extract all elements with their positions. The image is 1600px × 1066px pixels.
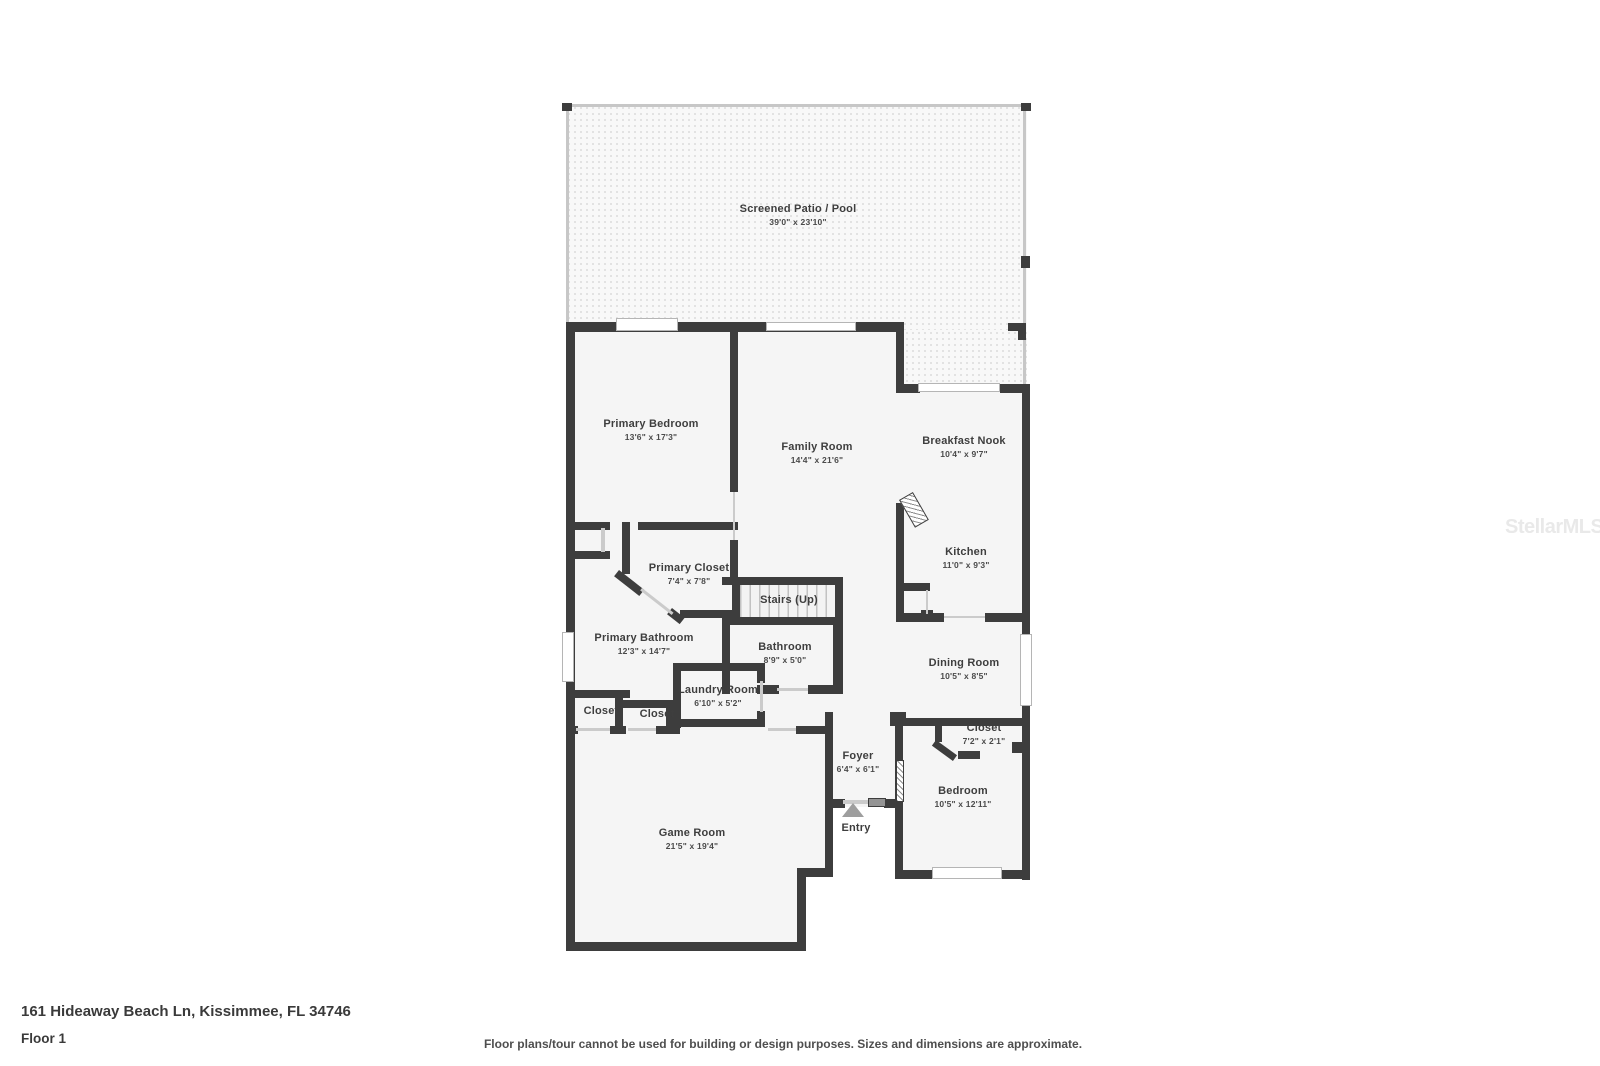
wall-segment [1008,323,1026,331]
door-opening [576,728,610,731]
door-opening [926,590,928,614]
room-dims: 6'4" x 6'1" [837,764,880,775]
room-label-family-room: Family Room14'4" x 21'6" [781,441,852,465]
room-dims: 10'5" x 12'11" [935,799,992,810]
window [932,867,1002,879]
room-name: Closet [640,708,675,722]
room-name: Kitchen [942,546,989,560]
wall-segment [615,700,673,708]
entry-label: Entry [841,822,870,836]
door-opening [777,688,808,691]
room-label-closet-b: Closet [640,708,675,722]
floor-plan: Screened Patio / Pool39'0" x 23'10" Prim… [0,0,1600,1066]
door-opening [768,728,796,731]
wall-segment [638,522,738,530]
wall-segment [896,322,904,392]
wall-segment [1000,384,1030,393]
window [616,318,678,331]
room-dims: 7'2" x 2'1" [963,736,1006,747]
wall-segment [566,942,806,951]
wall-segment [730,322,738,492]
floor-number-label: Floor 1 [21,1031,66,1046]
room-label-breakfast-nook: Breakfast Nook10'4" x 9'7" [922,435,1006,459]
room-dims: 14'4" x 21'6" [781,455,852,466]
room-label-stairs-up: Stairs (Up) [760,594,818,608]
room-label-kitchen: Kitchen11'0" x 9'3" [942,546,989,570]
screen-wall [566,104,569,326]
room-name: Laundry Room [678,684,758,698]
door-opening [760,681,763,712]
wall-segment [1012,742,1022,753]
room-label-bedroom-closet: Closet7'2" x 2'1" [963,722,1006,746]
floorplan-page: Screened Patio / Pool39'0" x 23'10" Prim… [0,0,1600,1066]
room-name: Breakfast Nook [922,435,1006,449]
room-name: Foyer [837,750,880,764]
room-dims: 39'0" x 23'10" [740,217,857,228]
room-label-game-room: Game Room21'5" x 19'4" [659,827,726,851]
wall-segment [1021,103,1031,111]
entry-arrow-icon [842,803,864,817]
wall-segment [622,522,630,574]
wall-segment [958,751,980,759]
room-dims: 21'5" x 19'4" [659,841,726,852]
room-name: Primary Bathroom [594,632,693,646]
room-label-primary-closet: Primary Closet7'4" x 7'8" [649,562,729,586]
mls-watermark: StellarMLS [1505,516,1600,539]
room-name: Dining Room [929,657,1000,671]
room-name: Entry [841,822,870,836]
room-name: Screened Patio / Pool [740,203,857,217]
window [918,383,1000,392]
room-floor [566,872,797,950]
window [562,632,574,682]
patio-floor [904,330,1027,388]
room-name: Closet [963,722,1006,736]
room-label-dining-room: Dining Room10'5" x 8'5" [929,657,1000,681]
room-label-foyer: Foyer6'4" x 6'1" [837,750,880,774]
room-label-laundry-room: Laundry Room6'10" x 5'2" [678,684,758,708]
door-leaf [896,760,904,802]
room-name: Closet [584,705,619,719]
room-name: Primary Closet [649,562,729,576]
wall-segment [562,103,572,111]
room-label-closet-a: Closet [584,705,619,719]
room-label-primary-bathroom: Primary Bathroom12'3" x 14'7" [594,632,693,656]
window [1020,634,1032,706]
disclaimer-text: Floor plans/tour cannot be used for buil… [484,1037,1082,1051]
room-dims: 10'4" x 9'7" [922,449,1006,460]
door-opening [601,528,605,552]
wall-segment [673,719,765,727]
wall-segment [722,617,730,694]
wall-segment [825,712,833,877]
room-label-bathroom: Bathroom8'9" x 5'0" [758,641,812,665]
wall-segment [797,868,806,951]
room-name: Game Room [659,827,726,841]
door-opening [944,616,985,618]
wall-segment [722,577,843,585]
wall-segment [673,663,765,671]
front-door [868,798,886,807]
door-opening [628,728,656,731]
room-dims: 7'4" x 7'8" [649,576,729,587]
wall-segment [566,690,630,698]
wall-segment [896,503,904,621]
door-opening [733,492,735,540]
wall-segment [1021,256,1030,268]
room-dims: 8'9" x 5'0" [758,655,812,666]
wall-segment [730,540,738,585]
room-label-primary-bedroom: Primary Bedroom13'6" x 17'3" [603,418,698,442]
wall-segment [833,617,843,694]
room-label-screened-patio-pool: Screened Patio / Pool39'0" x 23'10" [740,203,857,227]
room-name: Bedroom [935,785,992,799]
room-name: Family Room [781,441,852,455]
room-dims: 13'6" x 17'3" [603,432,698,443]
room-dims: 6'10" x 5'2" [678,698,758,709]
room-name: Bathroom [758,641,812,655]
room-name: Stairs (Up) [760,594,818,608]
room-label-bedroom: Bedroom10'5" x 12'11" [935,785,992,809]
room-name: Primary Bedroom [603,418,698,432]
screen-wall [566,104,1026,107]
room-dims: 10'5" x 8'5" [929,671,1000,682]
wall-segment [722,617,843,625]
property-address: 161 Hideaway Beach Ln, Kissimmee, FL 347… [21,1003,351,1020]
room-dims: 11'0" x 9'3" [942,560,989,571]
window [766,322,856,331]
wall-segment [680,610,738,618]
room-dims: 12'3" x 14'7" [594,646,693,657]
screen-wall [1023,104,1026,388]
